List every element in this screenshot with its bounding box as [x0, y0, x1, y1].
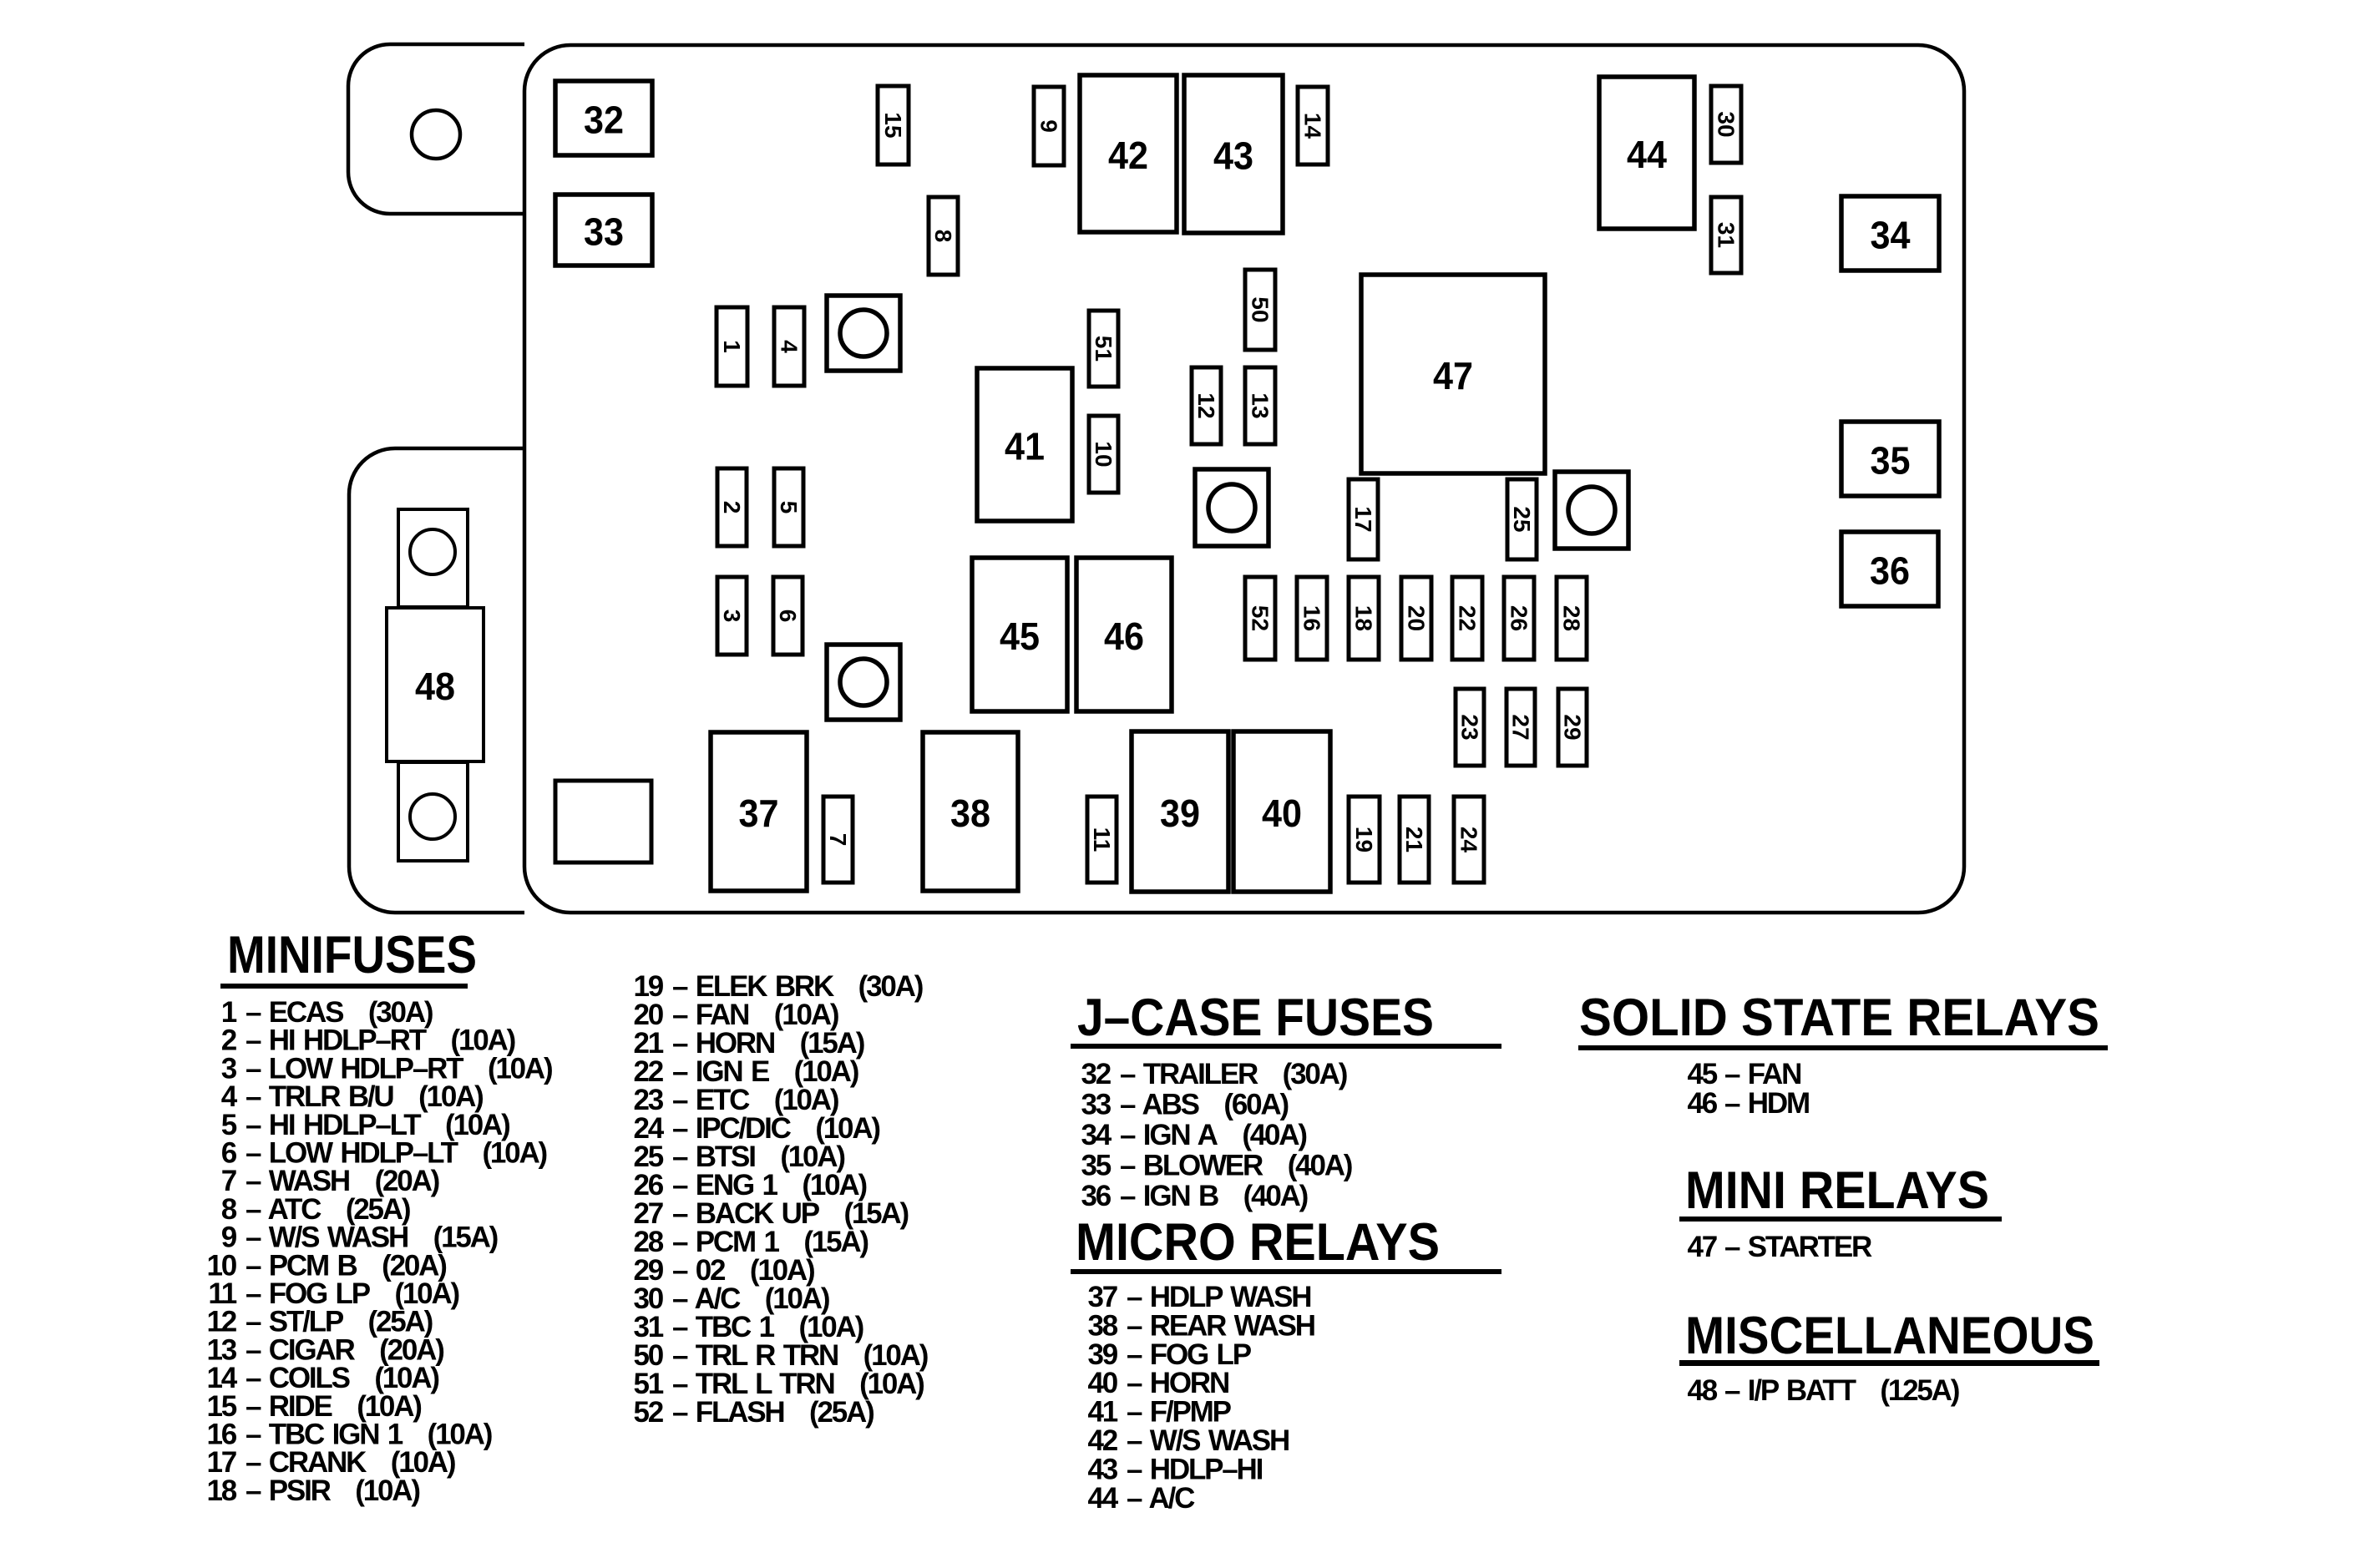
svg-text:34: 34 [1081, 1119, 1112, 1151]
svg-text:10: 10 [1091, 441, 1117, 467]
svg-text:MISCELLANEOUS: MISCELLANEOUS [1685, 1307, 2094, 1365]
svg-text:– ABS (60A): – ABS (60A) [1120, 1089, 1288, 1121]
svg-text:22: 22 [1455, 605, 1481, 631]
svg-text:42: 42 [1087, 1424, 1117, 1457]
svg-text:– STARTER: – STARTER [1724, 1231, 1872, 1263]
svg-text:1: 1 [719, 340, 745, 353]
svg-text:21: 21 [1401, 827, 1427, 852]
svg-text:– FAN: – FAN [1724, 1058, 1800, 1090]
svg-text:36: 36 [1081, 1180, 1111, 1212]
svg-text:11: 11 [1089, 827, 1115, 852]
svg-text:42: 42 [1108, 134, 1148, 177]
svg-text:2: 2 [719, 501, 745, 514]
svg-text:– HDLP–HI: – HDLP–HI [1127, 1453, 1263, 1485]
svg-text:44: 44 [1087, 1482, 1118, 1515]
svg-text:36: 36 [1870, 549, 1910, 593]
svg-text:9: 9 [1036, 119, 1062, 133]
svg-text:40: 40 [1087, 1367, 1117, 1399]
svg-text:33: 33 [1081, 1089, 1111, 1121]
svg-text:37: 37 [1087, 1281, 1117, 1313]
svg-text:43: 43 [1213, 134, 1253, 178]
svg-text:– TRAILER (30A): – TRAILER (30A) [1120, 1058, 1347, 1090]
svg-text:– A/C: – A/C [1127, 1482, 1195, 1515]
svg-text:52: 52 [1248, 605, 1274, 631]
svg-text:– HORN: – HORN [1127, 1367, 1228, 1399]
svg-text:31: 31 [1714, 222, 1739, 248]
svg-text:28: 28 [1559, 605, 1585, 631]
svg-text:J–CASE FUSES: J–CASE FUSES [1077, 989, 1434, 1047]
svg-text:24: 24 [1456, 827, 1482, 853]
svg-text:45: 45 [1000, 615, 1040, 658]
svg-text:14: 14 [1300, 113, 1326, 139]
svg-text:– IGN B (40A): – IGN B (40A) [1120, 1180, 1308, 1212]
svg-text:3: 3 [719, 610, 745, 623]
svg-text:17: 17 [1350, 506, 1376, 532]
svg-text:45: 45 [1687, 1058, 1717, 1090]
svg-text:50: 50 [1248, 296, 1274, 322]
svg-text:37: 37 [739, 792, 779, 835]
svg-text:44: 44 [1627, 133, 1667, 176]
svg-text:41: 41 [1087, 1396, 1117, 1429]
svg-text:52: 52 [633, 1396, 663, 1429]
svg-text:20: 20 [1404, 605, 1430, 631]
svg-text:– REAR WASH: – REAR WASH [1127, 1309, 1314, 1342]
svg-text:4: 4 [777, 340, 803, 353]
svg-text:– HDM: – HDM [1724, 1087, 1809, 1120]
svg-text:51: 51 [1091, 336, 1117, 362]
svg-text:35: 35 [1871, 439, 1911, 483]
svg-text:39: 39 [1087, 1338, 1117, 1371]
svg-text:– I/P BATT (125A): – I/P BATT (125A) [1724, 1374, 1959, 1407]
svg-text:16: 16 [1299, 605, 1325, 631]
svg-text:8: 8 [930, 230, 956, 243]
svg-text:6: 6 [775, 610, 801, 623]
svg-text:MICRO RELAYS: MICRO RELAYS [1076, 1213, 1440, 1272]
svg-text:47: 47 [1687, 1231, 1716, 1263]
svg-text:46: 46 [1104, 615, 1144, 658]
svg-text:32: 32 [1081, 1058, 1111, 1090]
svg-text:SOLID STATE RELAYS: SOLID STATE RELAYS [1579, 989, 2099, 1047]
svg-text:13: 13 [1248, 392, 1274, 418]
svg-text:34: 34 [1871, 214, 1911, 257]
svg-text:40: 40 [1262, 792, 1302, 835]
svg-text:5: 5 [776, 501, 802, 514]
svg-text:38: 38 [950, 792, 990, 835]
svg-text:33: 33 [584, 210, 624, 254]
svg-text:– W/S WASH: – W/S WASH [1127, 1424, 1289, 1457]
svg-text:48: 48 [1687, 1374, 1717, 1407]
svg-text:35: 35 [1081, 1150, 1111, 1182]
svg-text:47: 47 [1433, 354, 1473, 397]
svg-text:– FLASH (25A): – FLASH (25A) [672, 1396, 874, 1429]
svg-text:23: 23 [1457, 714, 1483, 740]
svg-text:19: 19 [1351, 827, 1377, 852]
svg-text:– IGN A (40A): – IGN A (40A) [1120, 1119, 1306, 1151]
svg-text:18: 18 [1351, 605, 1377, 631]
svg-text:18: 18 [206, 1475, 236, 1507]
svg-text:– PSIR (10A): – PSIR (10A) [246, 1475, 419, 1507]
svg-text:MINI RELAYS: MINI RELAYS [1685, 1161, 1989, 1220]
svg-text:30: 30 [1714, 111, 1739, 137]
svg-text:– FOG LP: – FOG LP [1127, 1338, 1252, 1371]
svg-text:MINIFUSES: MINIFUSES [227, 926, 477, 984]
svg-text:– BLOWER (40A): – BLOWER (40A) [1120, 1150, 1352, 1182]
svg-text:– HDLP WASH: – HDLP WASH [1127, 1281, 1310, 1313]
svg-text:41: 41 [1005, 425, 1045, 468]
svg-text:39: 39 [1160, 792, 1200, 835]
svg-text:38: 38 [1087, 1309, 1117, 1342]
svg-text:46: 46 [1687, 1087, 1717, 1120]
svg-text:43: 43 [1087, 1453, 1117, 1485]
svg-text:27: 27 [1508, 714, 1534, 740]
svg-text:7: 7 [825, 833, 851, 847]
svg-text:48: 48 [415, 665, 455, 708]
svg-text:– F/PMP: – F/PMP [1127, 1396, 1232, 1429]
svg-text:12: 12 [1193, 392, 1219, 418]
svg-text:32: 32 [584, 99, 624, 142]
svg-text:15: 15 [880, 112, 906, 138]
svg-text:29: 29 [1560, 714, 1586, 740]
svg-text:26: 26 [1506, 605, 1532, 631]
svg-text:25: 25 [1509, 506, 1535, 532]
